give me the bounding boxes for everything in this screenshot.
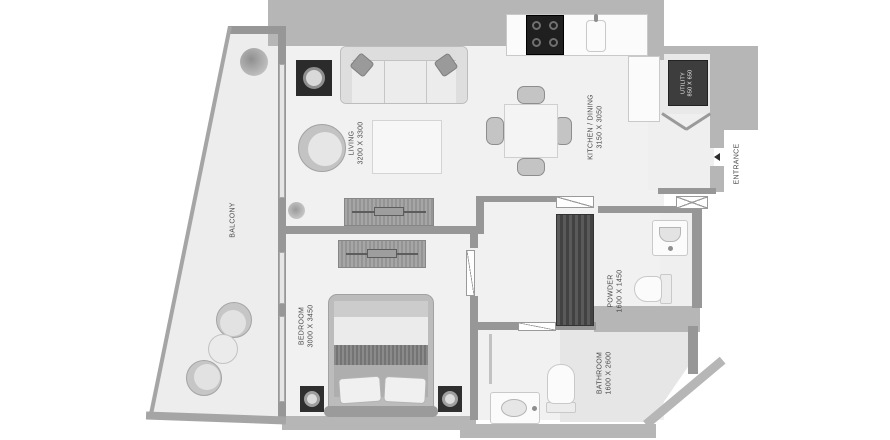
room-name: BALCONY <box>228 202 237 238</box>
kitchen-sink-icon <box>586 20 606 52</box>
toilet-icon <box>634 274 674 304</box>
wall-balcony-top <box>228 26 286 34</box>
plant-icon <box>288 202 305 219</box>
room-name: POWDER <box>607 269 616 312</box>
mask-top-living <box>268 0 510 46</box>
dining-chair-icon <box>517 158 545 176</box>
coffee-table-icon <box>372 120 442 174</box>
wall-hall-jog <box>476 196 484 234</box>
wall-hall-top <box>484 196 560 202</box>
dining-chair-icon <box>486 117 504 145</box>
door-leaf-bathroom <box>518 322 556 331</box>
wardrobe-icon <box>344 198 434 226</box>
bed-headboard <box>324 406 438 417</box>
wall-powder-right <box>692 206 702 308</box>
door-leaf-bedroom <box>466 250 475 296</box>
bathroom-label: BATHROOM 1600 X 2600 <box>596 351 615 394</box>
wardrobe-icon <box>338 240 426 268</box>
dining-table-icon <box>504 104 558 158</box>
room-dims: 1600 X 2600 <box>605 351 614 394</box>
room-name: UTILITY <box>681 70 688 97</box>
side-table-lamp-icon <box>296 60 332 96</box>
room-dims: 1600 X 1450 <box>616 269 625 312</box>
wall-mid-divider <box>284 226 484 234</box>
balcony-chair-icon <box>216 302 252 338</box>
bedroom-label: BEDROOM 3000 X 3450 <box>298 304 317 347</box>
washbasin-icon <box>652 220 688 256</box>
stove-icon <box>526 15 564 55</box>
room-name: ENTRANCE <box>732 144 741 185</box>
entrance-label: ENTRANCE <box>732 144 741 185</box>
nightstand-lamp-icon <box>300 386 324 412</box>
mask-top-kitchen <box>506 0 664 14</box>
toilet-icon <box>544 364 578 414</box>
room-dims: 850 X 650 <box>688 70 695 97</box>
room-name: LIVING <box>348 121 357 164</box>
mask-bathroom-bottom-wall <box>460 424 656 438</box>
entry-wall-upper <box>710 124 724 148</box>
closet-icon <box>556 214 594 326</box>
balcony-chair-icon <box>186 360 222 396</box>
wall-bath-right <box>688 326 698 374</box>
floor-plan: UTILITY 850 X 650 <box>0 0 890 440</box>
room-name: BEDROOM <box>298 304 307 347</box>
wall-bath-top-left <box>476 322 520 330</box>
entrance-arrow-icon <box>714 153 720 161</box>
sofa-icon <box>340 46 468 104</box>
balcony-label: BALCONY <box>228 202 237 238</box>
washbasin-icon <box>490 392 540 424</box>
door-leaf-entrance <box>676 196 708 209</box>
kitchen-counter-icon <box>628 56 660 122</box>
living-label: LIVING 3200 X 3300 <box>348 121 367 164</box>
double-bed-icon <box>328 294 434 416</box>
room-name: BATHROOM <box>596 351 605 394</box>
powder-label: POWDER 1600 X 1450 <box>607 269 626 312</box>
mask-right-of-utility <box>710 46 758 130</box>
sliding-door-bedroom-1 <box>279 252 285 304</box>
nightstand-lamp-icon <box>438 386 462 412</box>
room-dims: 3150 X 3050 <box>596 94 605 160</box>
balcony-table-icon <box>208 334 238 364</box>
wall-bedroom-right-upper <box>470 234 478 248</box>
room-dims: 3200 X 3300 <box>357 121 366 164</box>
sliding-door-bedroom-2 <box>279 316 285 402</box>
kitchen-dining-label: KITCHEN / DINING 3150 X 3050 <box>587 94 606 160</box>
plant-icon <box>240 48 268 76</box>
mask-utility-top-wall <box>646 46 716 54</box>
entry-bottom-wall <box>658 188 716 194</box>
door-leaf-hall-closet <box>556 196 594 208</box>
sliding-door-living <box>279 64 285 198</box>
shower-screen-icon <box>489 334 492 384</box>
bathroom-floor <box>560 330 694 422</box>
armchair-icon <box>298 124 346 172</box>
dining-chair-icon <box>517 86 545 104</box>
room-dims: 3000 X 3450 <box>307 304 316 347</box>
kitchen-faucet-icon <box>594 14 598 22</box>
room-name: KITCHEN / DINING <box>587 94 596 160</box>
utility-label: UTILITY 850 X 650 <box>681 70 696 97</box>
wall-bedroom-right-lower <box>470 296 478 420</box>
mask-bedroom-bottom-wall <box>282 416 476 430</box>
